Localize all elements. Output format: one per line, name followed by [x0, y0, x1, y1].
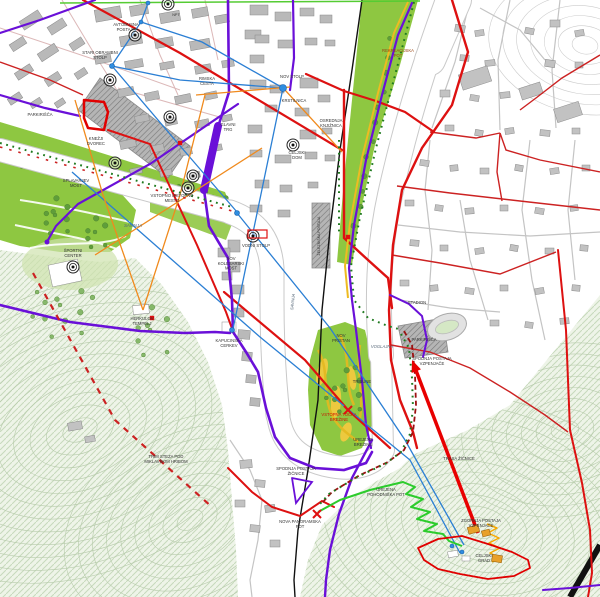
map-label: NPT: [172, 13, 180, 17]
building: [255, 480, 266, 488]
tree: [102, 223, 108, 229]
building: [410, 240, 419, 247]
tree: [89, 245, 93, 249]
building: [470, 94, 480, 101]
poi-bullseye-marker: [164, 111, 176, 123]
building: [250, 398, 261, 407]
building: [440, 245, 448, 251]
tree: [90, 295, 95, 300]
tree: [43, 300, 48, 305]
building: [248, 125, 262, 133]
building: [450, 165, 458, 172]
building: [465, 208, 474, 215]
tree: [77, 309, 83, 315]
tree: [85, 236, 90, 241]
building: [250, 525, 261, 533]
poi-bullseye-marker: [247, 230, 259, 242]
map-label: PARKIRIŠČA: [27, 112, 52, 117]
building: [235, 500, 245, 507]
map-label: TRIBUNE: [353, 379, 372, 384]
tree: [44, 221, 49, 226]
map-canvas[interactable]: NPTAVTOBUSNAPOSTAJASTARI OBRAMBNISTOLPPA…: [0, 0, 600, 597]
map-label: HERKULOVTEMPELJ: [130, 316, 153, 326]
building: [430, 285, 438, 292]
tree: [324, 396, 328, 400]
tree: [80, 331, 84, 335]
map-label: UREJENEBREŽINE: [353, 437, 373, 447]
tree: [358, 407, 362, 411]
bullseye-center-dot: [167, 3, 170, 6]
building: [250, 205, 262, 212]
blue-node-dot: [139, 20, 143, 24]
building: [500, 285, 508, 291]
building: [490, 320, 499, 326]
tree: [388, 36, 392, 40]
building: [550, 167, 560, 174]
map-label: ŽELEZNIŠKA POSTAJA: [316, 216, 321, 255]
map-label: OSREDNJAKNJIŽNICA: [320, 118, 343, 128]
tree: [65, 204, 71, 210]
map-label: KNEŽJIDVOREC: [87, 136, 105, 146]
bullseye-center-dot: [134, 34, 137, 37]
building: [278, 40, 294, 48]
map-label: KRSTILNICA: [282, 98, 307, 103]
tree: [343, 388, 347, 392]
tree: [141, 353, 145, 357]
poi-bullseye-marker: [67, 261, 79, 273]
map-label: STADION: [408, 300, 426, 305]
tree: [149, 304, 155, 310]
tree: [86, 228, 91, 233]
tree: [35, 290, 39, 294]
map-label: NOV STOLP: [280, 74, 304, 79]
building: [572, 285, 580, 292]
bullseye-center-dot: [114, 162, 117, 165]
purple-route-end-dot: [45, 240, 50, 245]
building: [525, 321, 534, 328]
building: [300, 8, 314, 16]
poi-bullseye-marker: [187, 170, 199, 182]
tree: [51, 209, 56, 214]
tree: [66, 229, 70, 233]
blue-node-dot: [110, 64, 115, 69]
tree: [55, 297, 60, 302]
tree: [344, 367, 350, 373]
tree: [136, 339, 141, 344]
castle-orange-building: [491, 554, 502, 563]
building: [535, 287, 545, 294]
tree: [54, 196, 60, 202]
building: [240, 459, 253, 468]
bullseye-center-dot: [109, 79, 112, 82]
poi-bullseye-marker: [162, 0, 174, 10]
building: [275, 155, 291, 163]
building: [305, 152, 317, 159]
building: [308, 182, 318, 188]
tree: [50, 335, 54, 339]
building: [475, 29, 485, 36]
poi-bullseye-marker: [109, 157, 121, 169]
blue-node-dot: [280, 85, 287, 92]
building: [250, 5, 268, 15]
building: [505, 127, 515, 134]
blue-node-dot: [460, 550, 464, 554]
building: [278, 210, 290, 217]
building: [480, 168, 489, 174]
building: [420, 159, 430, 166]
tree: [165, 350, 169, 354]
building: [320, 15, 332, 23]
map-label: RIMSKACESTA: [199, 76, 215, 86]
blue-node-dot: [230, 328, 235, 333]
tree: [93, 230, 97, 234]
blue-node-dot: [146, 1, 150, 5]
tree: [31, 315, 35, 319]
blue-node-dot: [235, 211, 240, 216]
map-label: AVTOBUSNAPOSTAJA: [113, 22, 139, 32]
building: [575, 29, 585, 36]
building: [440, 90, 450, 97]
building: [515, 164, 524, 171]
bullseye-center-dot: [72, 266, 75, 269]
building: [580, 245, 588, 252]
map-label: SAVINJA: [124, 223, 142, 228]
building: [485, 60, 495, 67]
building: [500, 92, 510, 99]
building: [280, 185, 292, 192]
map-label: VODNI STOLP: [242, 243, 270, 248]
tree: [79, 288, 85, 294]
building: [572, 128, 580, 134]
map-label: TRIM STEZA PODMIKLAVŠKIM HRIBOM: [144, 454, 188, 464]
building: [325, 155, 335, 161]
tree: [103, 243, 107, 247]
bullseye-center-dot: [292, 144, 295, 147]
building: [540, 130, 550, 137]
tree: [340, 384, 345, 389]
building: [300, 78, 318, 88]
map-label: VOGLAJNA: [371, 344, 394, 349]
tree: [356, 392, 362, 398]
building: [475, 129, 484, 136]
building: [475, 247, 485, 254]
building: [250, 80, 266, 89]
urban-plan-map: NPTAVTOBUSNAPOSTAJASTARI OBRAMBNISTOLPPA…: [0, 0, 600, 597]
building: [445, 125, 454, 131]
tree: [164, 316, 170, 322]
building: [270, 540, 280, 547]
map-label: TRASA ŽIČNICE: [443, 456, 475, 461]
tree: [44, 211, 49, 216]
building: [250, 55, 264, 63]
bullseye-center-dot: [169, 116, 172, 119]
castle-keep-b: [462, 556, 470, 561]
bullseye-center-dot: [187, 187, 190, 190]
map-label: PARKIRIŠČA: [411, 337, 436, 342]
building: [300, 130, 316, 139]
building: [545, 59, 556, 67]
map-label: CELJSKIGRAD: [476, 553, 493, 563]
building: [325, 40, 335, 46]
bullseye-center-dot: [252, 235, 255, 238]
tree: [58, 303, 62, 307]
building: [465, 287, 475, 294]
building: [500, 205, 508, 211]
red-square-marker: [346, 235, 350, 239]
building: [400, 280, 409, 286]
tree: [332, 386, 337, 391]
building: [435, 204, 444, 211]
building: [250, 150, 262, 157]
building: [510, 244, 519, 251]
building: [405, 200, 414, 206]
building: [255, 35, 269, 43]
blue-node-dot: [450, 544, 454, 548]
building: [550, 20, 560, 27]
building: [275, 12, 291, 21]
tree: [93, 216, 99, 222]
poi-bullseye-marker: [104, 74, 116, 86]
building: [318, 95, 330, 102]
map-label: ŠPORTNICENTER: [64, 248, 83, 258]
red-square-marker: [178, 141, 182, 145]
bullseye-center-dot: [192, 175, 195, 178]
building: [305, 38, 317, 45]
building: [246, 375, 257, 384]
building: [535, 207, 545, 214]
